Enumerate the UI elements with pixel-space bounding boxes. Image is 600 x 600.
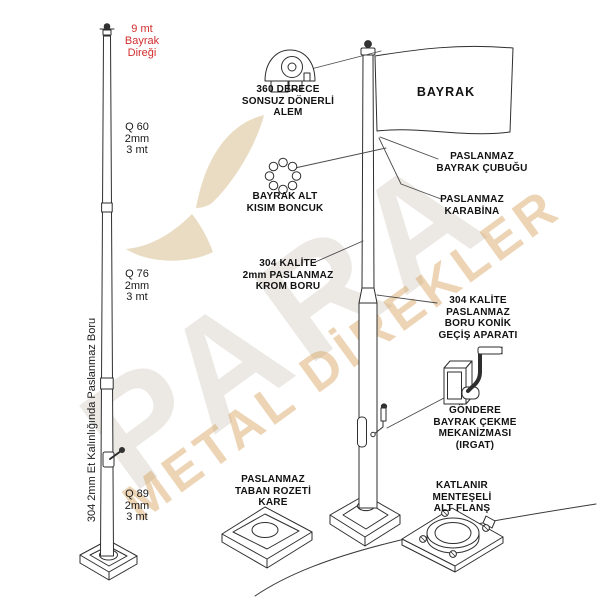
left-pole-joint-upper [102,203,113,212]
label-irgat: GÖNDERE BAYRAK ÇEKME MEKANİZMASI (IRGAT) [433,405,516,451]
left-pole-joint-lower [101,378,114,389]
left-pole-section-label-q76: Q 76 2mm 3 mt [125,269,149,304]
right-pole-conic-joint [359,288,377,303]
label-boncuk: BAYRAK ALT KISIM BONCUK [247,191,324,214]
right-pole-upper-tube [362,55,374,288]
label-krom-boru: 304 KALİTE 2mm PASLANMAZ KROM BORU [243,258,334,293]
label-karabina: PASLANMAZ KARABİNA [440,194,504,217]
left-pole-tube [101,36,114,556]
label-taban-rozeti: PASLANMAZ TABAN ROZETİ KARE [235,474,311,509]
label-bayrak-cubugu: PASLANMAZ BAYRAK ÇUBUĞU [436,151,527,174]
pole-height-title: 9 mt Bayrak Direği [125,24,159,59]
right-pole-lower-tube [359,303,377,508]
label-konik-gecis: 304 KALİTE PASLANMAZ BORU KONİK GEÇİŞ AP… [438,295,517,341]
label-alt-flans: KATLANIR MENTEŞELİ ALT FLANŞ [432,480,491,515]
bead-ring-icon [265,158,301,194]
flag-label: BAYRAK [417,85,475,99]
left-pole-section-label-q60: Q 60 2mm 3 mt [125,122,149,157]
winch-mechanism-icon [444,347,502,404]
left-pole-finial-icon [100,24,114,35]
flagpole-diagram: PARA METAL DİREKLER [0,0,600,600]
hinged-flange-icon [402,508,503,572]
left-pole-section-label-q89: Q 89 2mm 3 mt [125,489,149,524]
left-pole-material-note: 304 2mm Et Kalınlığında Paslanmaz Boru [86,318,98,522]
label-alem: 360 DERECE SONSUZ DÖNERLİ ALEM [242,84,334,119]
square-base-rosette-icon [222,507,312,568]
